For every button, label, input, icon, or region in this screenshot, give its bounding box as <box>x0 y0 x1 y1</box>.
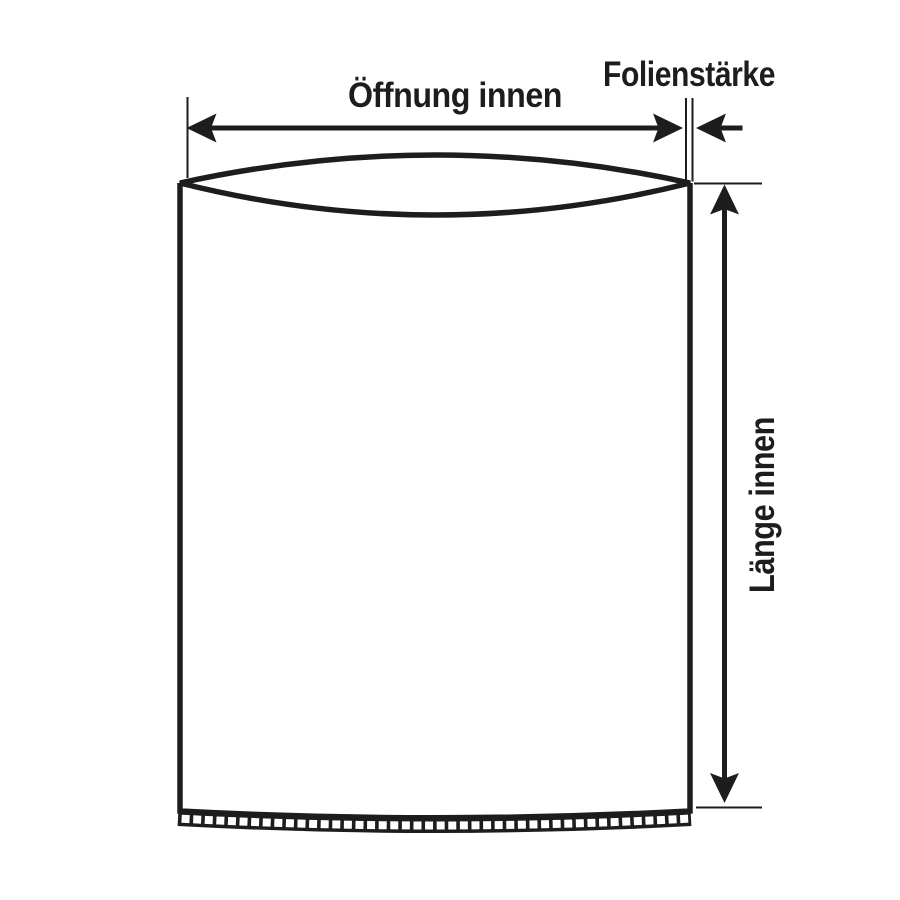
label-opening: Öffnung innen <box>348 76 562 115</box>
bag-body <box>180 183 690 818</box>
label-length: Länge innen <box>743 417 782 593</box>
label-film-thickness: Folienstärke <box>603 55 775 94</box>
diagram-page: Öffnung innen Folienstärke Länge innen <box>0 0 900 900</box>
bag-dimension-diagram: Öffnung innen Folienstärke Länge innen <box>0 0 900 900</box>
